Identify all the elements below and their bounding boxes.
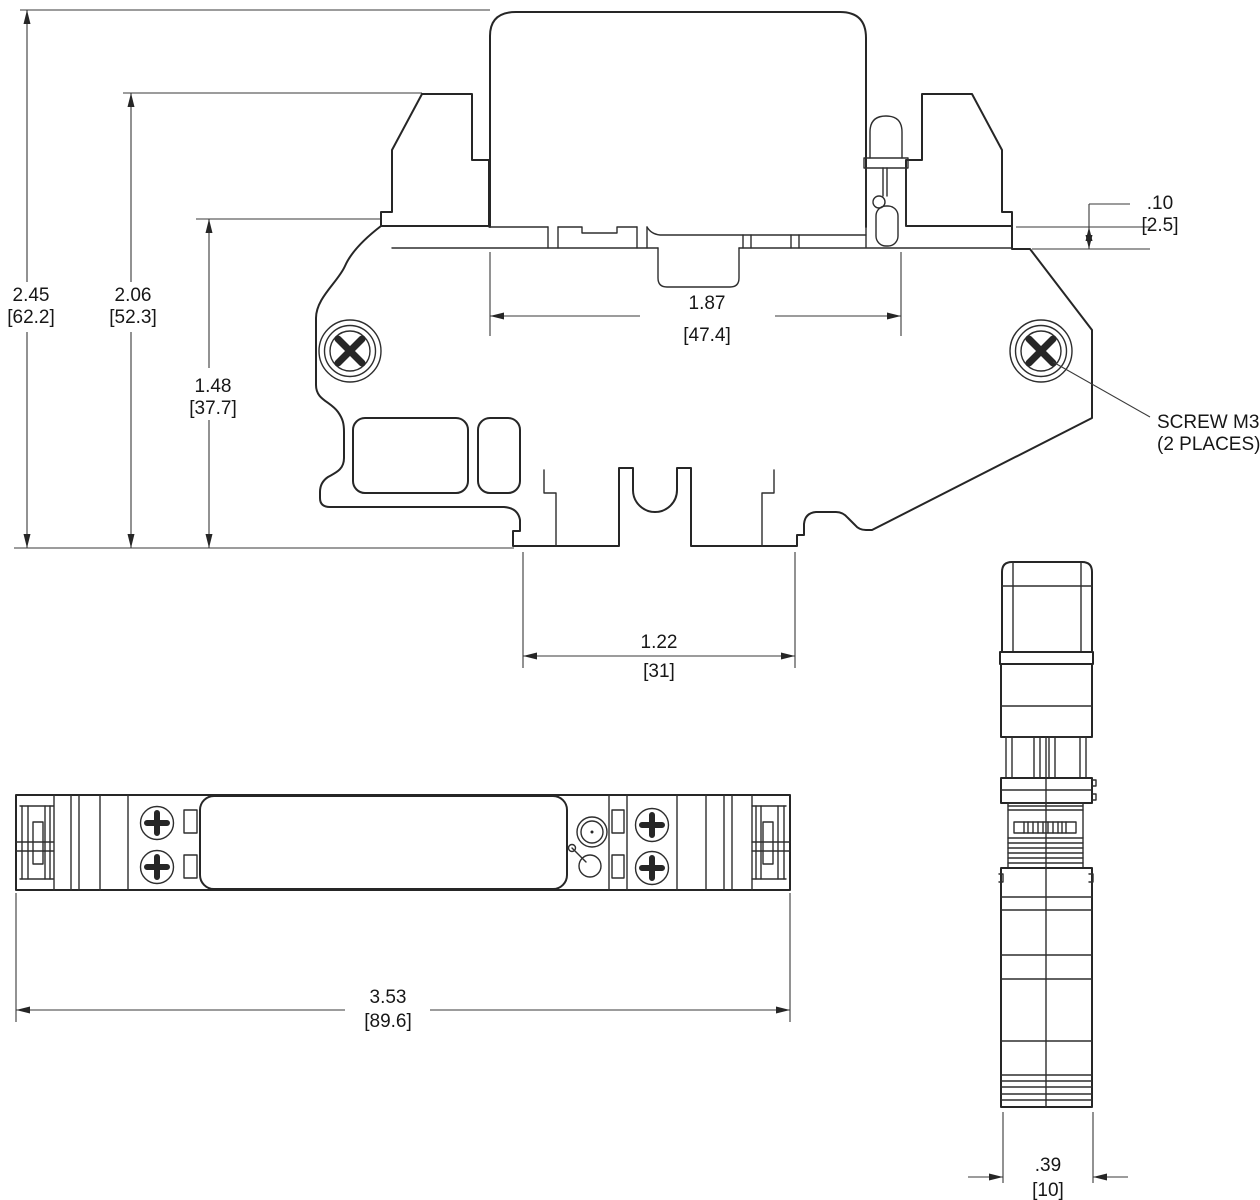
end-cap xyxy=(1002,562,1092,652)
terminal-opening xyxy=(184,810,197,833)
led-well xyxy=(866,168,906,247)
led-capsule xyxy=(876,206,898,246)
dim-text-step-mm: [2.5] xyxy=(1142,215,1179,236)
terminal-screw xyxy=(141,851,174,884)
right-clamp xyxy=(906,94,1012,226)
relay-body-side xyxy=(490,12,866,227)
dim-step: .10 [2.5] xyxy=(1016,193,1178,249)
dim-clamp-height: 2.06 [52.3] xyxy=(109,93,422,548)
front-view xyxy=(16,795,790,890)
screw-leader-line xyxy=(1053,362,1150,417)
screw-note-line2: (2 PLACES) xyxy=(1157,434,1260,455)
left-clamp xyxy=(381,94,489,226)
terminal-opening xyxy=(612,855,624,878)
front-left-clip xyxy=(16,795,54,890)
dim-text-foot-width-in: 1.22 xyxy=(641,632,678,653)
dim-text-base-height-mm: [37.7] xyxy=(189,398,237,419)
relay-body-front xyxy=(200,796,567,889)
dim-relay-width: 1.87 [47.4] xyxy=(490,252,901,346)
front-outline xyxy=(16,795,790,890)
dim-overall-height: 2.45 [62.2] xyxy=(7,10,514,548)
front-led xyxy=(577,817,607,847)
din-adapter-outline xyxy=(316,226,1092,546)
dim-text-foot-width-mm: [31] xyxy=(643,661,675,682)
terminal-opening xyxy=(612,810,624,833)
dim-text-relay-width-mm: [47.4] xyxy=(683,325,731,346)
body-cutout-small xyxy=(478,418,520,493)
end-band-top xyxy=(1000,652,1093,664)
drawing-canvas: 2.45 [62.2] 2.06 [52.3] 1.48 [37.7] 1.87… xyxy=(0,0,1260,1200)
dim-text-overall-height-mm: [62.2] xyxy=(7,307,55,328)
din-foot-notches xyxy=(544,470,774,546)
phillips-cross-icon xyxy=(338,339,362,363)
front-test-actuator xyxy=(569,845,602,878)
dim-base-height: 1.48 [37.7] xyxy=(189,219,380,548)
body-cutout-large xyxy=(353,418,468,493)
dim-end-width: .39 [10] xyxy=(968,1112,1128,1200)
led-flange xyxy=(864,158,908,168)
note-screw: SCREW M3 (2 PLACES) xyxy=(1053,362,1260,455)
front-dividers-right xyxy=(706,795,752,890)
phillips-cross-icon xyxy=(1029,339,1053,363)
screw-note-line1: SCREW M3 xyxy=(1157,412,1259,433)
dim-text-overall-height-in: 2.45 xyxy=(13,285,50,306)
dim-text-clamp-height-in: 2.06 xyxy=(115,285,152,306)
mounting-screw-left xyxy=(319,320,381,382)
front-dividers-left xyxy=(71,795,128,890)
terminal-screw xyxy=(636,852,669,885)
end-view xyxy=(999,562,1096,1107)
led-dome xyxy=(870,116,902,158)
front-right-clip xyxy=(752,806,790,879)
dim-text-end-width-in: .39 xyxy=(1035,1155,1061,1176)
dim-text-clamp-height-mm: [52.3] xyxy=(109,307,157,328)
dim-foot-width: 1.22 [31] xyxy=(523,552,795,682)
dim-text-relay-width-in: 1.87 xyxy=(689,293,726,314)
terminal-screw xyxy=(636,809,669,842)
drawing-page: 2.45 [62.2] 2.06 [52.3] 1.48 [37.7] 1.87… xyxy=(0,0,1260,1200)
end-upper-section xyxy=(1001,664,1092,737)
dim-text-base-height-in: 1.48 xyxy=(195,376,232,397)
base-plate-details xyxy=(392,227,1012,287)
dim-text-overall-length-in: 3.53 xyxy=(370,987,407,1008)
side-view xyxy=(316,12,1092,546)
dim-text-overall-length-mm: [89.6] xyxy=(364,1011,412,1032)
mounting-screw-right xyxy=(1010,320,1072,382)
terminal-opening xyxy=(184,855,197,878)
dim-text-end-width-mm: [10] xyxy=(1032,1180,1064,1200)
led-assembly xyxy=(864,116,908,247)
led-leads xyxy=(883,168,887,196)
dim-overall-length: 3.53 [89.6] xyxy=(16,893,790,1032)
terminal-screw xyxy=(141,807,174,840)
dim-text-step-in: .10 xyxy=(1147,193,1173,214)
